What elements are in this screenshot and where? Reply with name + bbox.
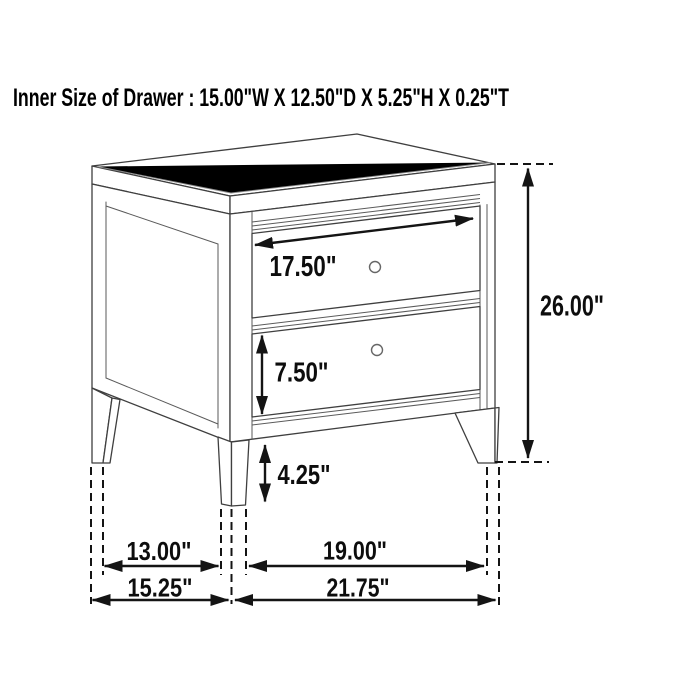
dim-label-top-drawer-width: 17.50": [270, 251, 337, 283]
nightstand-drawing: [92, 134, 499, 506]
front-left-leg-front-face: [232, 440, 250, 506]
front-right-leg: [455, 408, 495, 463]
dim-label-front-overall-width: 21.75": [327, 573, 390, 603]
dim-label-side-leg-inner-span: 13.00": [127, 536, 192, 566]
bottom-drawer-knob: [372, 345, 383, 356]
front-left-leg-side-face: [218, 437, 232, 506]
dim-label-front-leg-inner-span: 19.00": [323, 536, 387, 566]
product-dimension-diagram: 17.50" 26.00" 7.50" 4.25": [0, 0, 700, 700]
dim-label-bottom-drawer-height: 7.50": [275, 357, 329, 388]
nightstand-diagram-canvas: 17.50" 26.00" 7.50" 4.25": [0, 0, 700, 700]
front-right-leg-outer-face: [495, 408, 499, 464]
diagram-title: Inner Size of Drawer : 15.00"W X 12.50"D…: [13, 84, 509, 112]
dim-label-overall-height: 26.00": [540, 291, 604, 323]
dim-label-side-overall-depth: 15.25": [128, 573, 193, 603]
top-drawer-knob: [370, 262, 381, 273]
dim-label-leg-height: 4.25": [278, 459, 331, 490]
